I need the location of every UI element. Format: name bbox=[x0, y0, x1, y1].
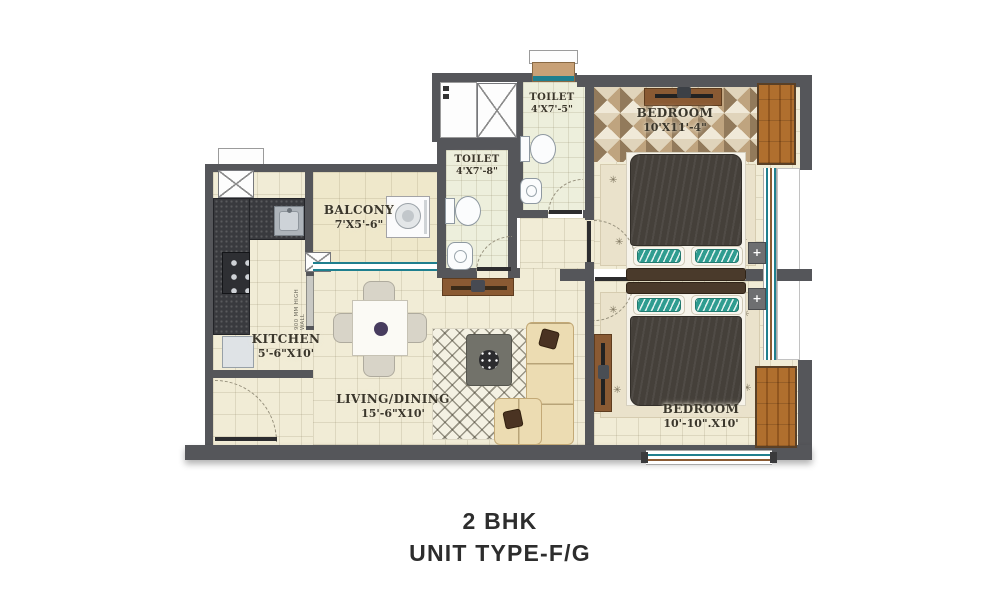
centerpiece-icon bbox=[374, 322, 388, 336]
wall-segment bbox=[800, 75, 812, 170]
bed-cushion bbox=[637, 298, 681, 312]
wardrobe-icon bbox=[757, 83, 796, 165]
shaft-x-icon bbox=[477, 83, 517, 138]
wall-segment bbox=[205, 164, 213, 458]
window-cap bbox=[770, 452, 777, 463]
half-wall-cap bbox=[306, 326, 314, 330]
ledge bbox=[218, 148, 264, 165]
bedroom-top-label: BEDROOM 10'X11'-4" bbox=[600, 106, 750, 134]
hall-floor bbox=[520, 218, 594, 268]
wall-segment bbox=[560, 269, 594, 281]
toilet-top-door-leaf bbox=[549, 210, 582, 214]
bed-cushion bbox=[637, 249, 681, 263]
bedroom-top-door-leaf bbox=[587, 221, 591, 262]
kitchen-label: KITCHEN 5'-6"X10' bbox=[248, 332, 324, 360]
bedroom-bottom-label: BEDROOM 10'-10".X10' bbox=[628, 402, 774, 430]
floor-plan-page: ✳ ✳ ✳ ✳ ✳ ✳ ✳ ✳ ✳ ✳ bbox=[0, 0, 1000, 600]
stove-icon bbox=[222, 252, 250, 294]
main-door-leaf bbox=[215, 437, 277, 441]
console-table-icon bbox=[442, 278, 514, 296]
wc-icon bbox=[455, 196, 481, 226]
rug-motif-icon: ✳ bbox=[609, 175, 617, 186]
dining-table-icon bbox=[352, 300, 408, 356]
meter-icon bbox=[443, 94, 449, 99]
basin-bowl bbox=[454, 250, 467, 263]
tv-unit-icon bbox=[644, 88, 722, 106]
side-table-icon: + bbox=[748, 288, 766, 310]
main-door-swing-arc bbox=[215, 380, 277, 442]
washbasin-icon bbox=[447, 242, 473, 270]
plan-title: 2 BHK UNIT TYPE-F/G bbox=[284, 508, 716, 567]
tv-box bbox=[677, 87, 691, 98]
bed-duvet bbox=[630, 154, 742, 246]
bedroom-right-window bbox=[763, 168, 777, 360]
kitchen-shaft-x-icon bbox=[218, 170, 254, 198]
washbasin-icon bbox=[520, 178, 542, 204]
balcony-label: BALCONY 7'X5'-6" bbox=[300, 203, 418, 231]
bed-headboard bbox=[626, 268, 746, 281]
toilet-top-door-swing-arc bbox=[548, 179, 583, 214]
window-cap bbox=[641, 452, 648, 463]
bed-cushion bbox=[695, 249, 739, 263]
wc-icon bbox=[530, 134, 556, 164]
plus-icon: + bbox=[749, 292, 765, 305]
plan-title-line1: 2 BHK bbox=[284, 508, 716, 535]
balcony-rail-window bbox=[313, 262, 437, 271]
wall-segment bbox=[585, 281, 594, 445]
floor-plan: ✳ ✳ ✳ ✳ ✳ ✳ ✳ ✳ ✳ ✳ bbox=[0, 0, 1000, 600]
duct-room bbox=[440, 82, 477, 138]
side-table-icon: + bbox=[748, 242, 766, 264]
bed-cushion bbox=[695, 298, 739, 312]
plan-title-line2: UNIT TYPE-F/G bbox=[284, 540, 716, 567]
basin-bowl bbox=[526, 185, 537, 197]
half-wall-cap bbox=[306, 272, 314, 276]
throw-pillow-icon bbox=[502, 408, 523, 429]
wc-tank-icon bbox=[445, 198, 455, 224]
half-height-wall bbox=[306, 272, 314, 330]
wall-segment bbox=[583, 210, 594, 218]
toilet-mid-door-leaf bbox=[477, 267, 511, 271]
living-dining-label: LIVING/DINING 15'-6"X10' bbox=[318, 392, 468, 420]
wc-tank-icon bbox=[520, 136, 530, 162]
dining-chair-icon bbox=[363, 353, 395, 377]
toilet-top-window bbox=[532, 62, 575, 82]
faucet-icon bbox=[287, 208, 292, 213]
meter-icon bbox=[443, 86, 449, 91]
washer-panel bbox=[424, 200, 427, 234]
wall-segment bbox=[517, 210, 548, 218]
tv-box bbox=[598, 365, 609, 379]
bedroom-bottom-window bbox=[646, 450, 772, 465]
coffee-table-icon bbox=[466, 334, 512, 386]
dresser-tv-unit-icon bbox=[594, 334, 612, 412]
bed-headboard bbox=[626, 282, 746, 294]
tray-icon bbox=[479, 350, 499, 370]
wall-segment bbox=[798, 360, 812, 458]
plus-icon: + bbox=[749, 246, 765, 259]
sink-bowl bbox=[279, 211, 299, 231]
toilet-mid-label: TOILET 4'X7'-8" bbox=[441, 154, 513, 177]
wall-segment bbox=[432, 73, 440, 142]
exterior-ledge bbox=[777, 168, 800, 360]
wall-segment bbox=[213, 370, 313, 378]
toilet-top-label: TOILET 4'X7'-5" bbox=[516, 92, 588, 115]
console-box bbox=[471, 280, 485, 292]
half-wall-note: 900 MM HIGH WALL bbox=[294, 272, 306, 330]
rug-motif-icon: ✳ bbox=[613, 385, 621, 396]
bed-duvet bbox=[630, 316, 742, 406]
